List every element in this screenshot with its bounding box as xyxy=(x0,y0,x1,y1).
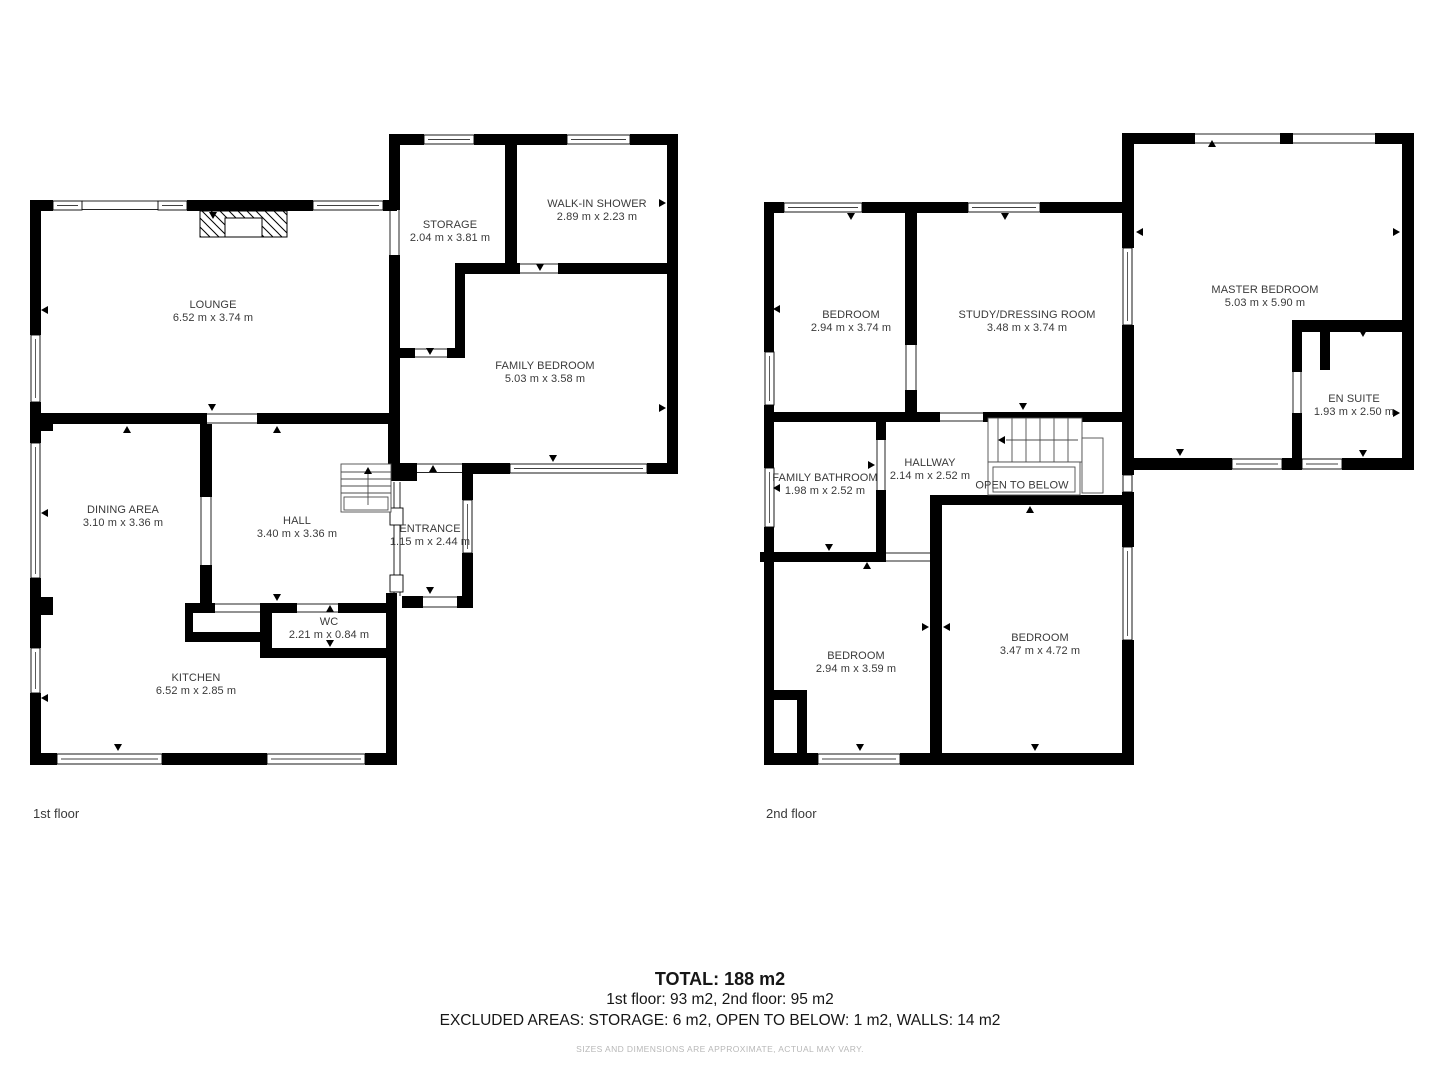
room-label: FAMILY BEDROOM5.03 m x 3.58 m xyxy=(495,360,594,386)
room-name: WALK-IN SHOWER xyxy=(547,198,646,211)
room-label: LOUNGE6.52 m x 3.74 m xyxy=(173,299,253,325)
room-dimensions: 2.21 m x 0.84 m xyxy=(289,629,369,642)
room-name: EN SUITE xyxy=(1314,393,1394,406)
room-dimensions: 3.47 m x 4.72 m xyxy=(1000,645,1080,658)
first-floor-windows xyxy=(31,135,647,764)
room-dimensions: 2.94 m x 3.74 m xyxy=(811,322,891,335)
room-dimensions: 6.52 m x 2.85 m xyxy=(156,685,236,698)
room-label: BEDROOM3.47 m x 4.72 m xyxy=(1000,632,1080,658)
floorplan-drawing xyxy=(0,0,1440,1080)
room-dimensions: 1.15 m x 2.44 m xyxy=(390,536,470,549)
room-name: ENTRANCE xyxy=(390,523,470,536)
room-name: WC xyxy=(289,616,369,629)
room-label: STORAGE2.04 m x 3.81 m xyxy=(410,219,490,245)
room-dimensions: 6.52 m x 3.74 m xyxy=(173,312,253,325)
room-label: WC2.21 m x 0.84 m xyxy=(289,616,369,642)
room-name: BEDROOM xyxy=(811,309,891,322)
room-dimensions: 5.03 m x 3.58 m xyxy=(495,373,594,386)
room-dimensions: 3.48 m x 3.74 m xyxy=(959,322,1096,335)
room-name: FAMILY BEDROOM xyxy=(495,360,594,373)
room-dimensions: 3.40 m x 3.36 m xyxy=(257,528,337,541)
room-label: HALLWAY2.14 m x 2.52 m xyxy=(890,457,970,483)
room-name: FAMILY BATHROOM xyxy=(772,472,877,485)
room-label: KITCHEN6.52 m x 2.85 m xyxy=(156,672,236,698)
room-dimensions: 2.14 m x 2.52 m xyxy=(890,470,970,483)
floor-caption: 2nd floor xyxy=(766,806,817,821)
room-label: STUDY/DRESSING ROOM3.48 m x 3.74 m xyxy=(959,309,1096,335)
excluded-areas-text: EXCLUDED AREAS: STORAGE: 6 m2, OPEN TO B… xyxy=(0,1012,1440,1030)
room-name: STORAGE xyxy=(410,219,490,232)
room-label: BEDROOM2.94 m x 3.74 m xyxy=(811,309,891,335)
room-label: DINING AREA3.10 m x 3.36 m xyxy=(83,504,163,530)
floor-areas-text: 1st floor: 93 m2, 2nd floor: 95 m2 xyxy=(0,991,1440,1009)
room-label: FAMILY BATHROOM1.98 m x 2.52 m xyxy=(772,472,877,498)
room-name: KITCHEN xyxy=(156,672,236,685)
room-name: OPEN TO BELOW xyxy=(975,480,1068,493)
room-label: MASTER BEDROOM5.03 m x 5.90 m xyxy=(1211,284,1318,310)
room-dimensions: 2.89 m x 2.23 m xyxy=(547,211,646,224)
room-name: BEDROOM xyxy=(816,650,896,663)
room-name: BEDROOM xyxy=(1000,632,1080,645)
room-dimensions: 2.04 m x 3.81 m xyxy=(410,232,490,245)
floorplan-first-floor xyxy=(30,134,678,765)
room-dimensions: 5.03 m x 5.90 m xyxy=(1211,297,1318,310)
room-dimensions: 3.10 m x 3.36 m xyxy=(83,517,163,530)
room-dimensions: 2.94 m x 3.59 m xyxy=(816,663,896,676)
room-name: LOUNGE xyxy=(173,299,253,312)
room-dimensions: 1.93 m x 2.50 m xyxy=(1314,406,1394,419)
room-label: WALK-IN SHOWER2.89 m x 2.23 m xyxy=(547,198,646,224)
total-area-text: TOTAL: 188 m2 xyxy=(0,969,1440,990)
room-name: MASTER BEDROOM xyxy=(1211,284,1318,297)
room-label: HALL3.40 m x 3.36 m xyxy=(257,515,337,541)
room-label: OPEN TO BELOW xyxy=(975,480,1068,493)
room-dimensions: 1.98 m x 2.52 m xyxy=(772,485,877,498)
disclaimer-text: SIZES AND DIMENSIONS ARE APPROXIMATE, AC… xyxy=(0,1044,1440,1054)
room-label: BEDROOM2.94 m x 3.59 m xyxy=(816,650,896,676)
room-name: HALLWAY xyxy=(890,457,970,470)
floorplan-page: LOUNGE6.52 m x 3.74 mSTORAGE2.04 m x 3.8… xyxy=(0,0,1440,1080)
room-name: HALL xyxy=(257,515,337,528)
room-name: DINING AREA xyxy=(83,504,163,517)
floor-caption: 1st floor xyxy=(33,806,79,821)
room-name: STUDY/DRESSING ROOM xyxy=(959,309,1096,322)
first-floor-stairs xyxy=(341,464,391,512)
room-label: EN SUITE1.93 m x 2.50 m xyxy=(1314,393,1394,419)
room-label: ENTRANCE1.15 m x 2.44 m xyxy=(390,523,470,549)
